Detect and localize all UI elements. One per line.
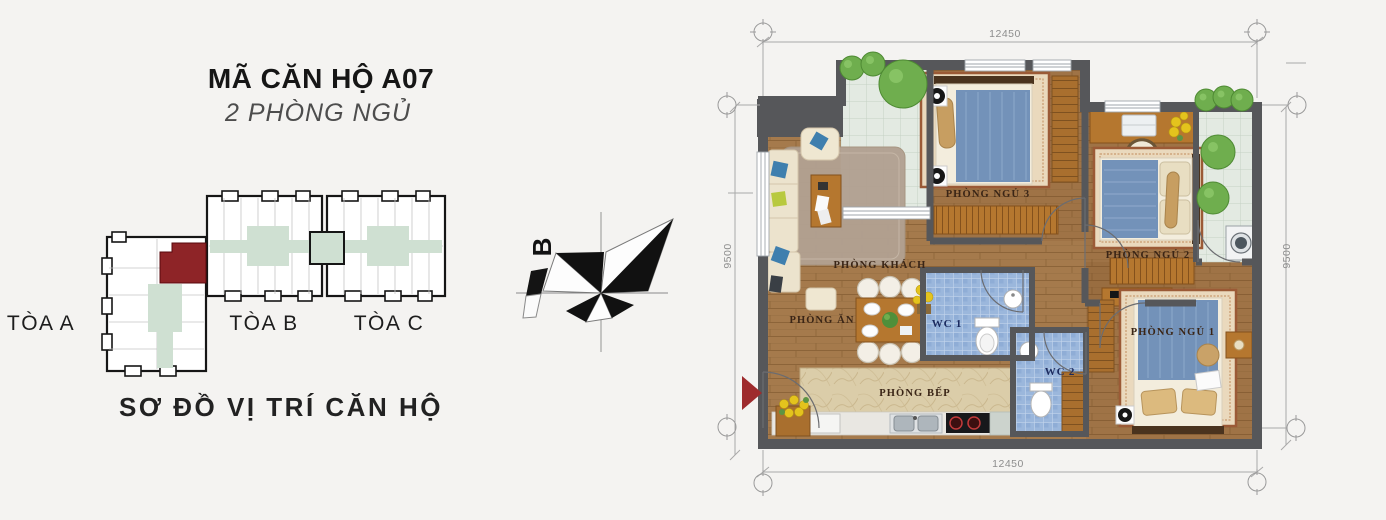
- building-connector: [310, 232, 344, 264]
- header: MÃ CĂN HỘ A07 2 PHÒNG NGỦ: [208, 62, 434, 127]
- dining-furniture: [856, 277, 923, 365]
- compass-icon: B: [516, 212, 673, 352]
- compass-north-label: B: [527, 238, 557, 257]
- room-label-kitchen: PHÒNG BẾP: [879, 386, 950, 399]
- room-label-bedroom2: PHÒNG NGỦ 2: [1106, 249, 1190, 261]
- room-label-wc2: WC 2: [1045, 366, 1075, 378]
- floor-plan: PHÒNG KHÁCH PHÒNG ĂN PHÒNG BẾP PHÒNG NGỦ…: [718, 19, 1306, 496]
- bedroom3-furniture: [921, 73, 1078, 234]
- room-label-living: PHÒNG KHÁCH: [834, 259, 927, 271]
- building-key-diagram: TÒA A TÒA B TÒA C SƠ ĐỒ VỊ TRÍ CĂN HỘ: [7, 191, 445, 422]
- building-label-c: TÒA C: [354, 312, 425, 335]
- dimension-bottom: 12450: [754, 450, 1266, 496]
- room-label-bedroom3: PHÒNG NGỦ 3: [946, 188, 1030, 200]
- building-label-b: TÒA B: [229, 312, 298, 335]
- speaker-icon: [1116, 406, 1134, 424]
- apartment-floorplan-page: MÃ CĂN HỘ A07 2 PHÒNG NGỦ: [0, 0, 1386, 520]
- building-a-outline: [102, 232, 206, 376]
- building-label-a: TÒA A: [7, 312, 75, 335]
- svg-text:9500: 9500: [722, 243, 734, 268]
- svg-text:12450: 12450: [989, 28, 1021, 40]
- svg-text:12450: 12450: [992, 458, 1024, 470]
- key-plan-caption: SƠ ĐỒ VỊ TRÍ CĂN HỘ: [119, 392, 443, 422]
- room-label-wc1: WC 1: [932, 318, 962, 330]
- room-label-bedroom1: PHÒNG NGỦ 1: [1131, 326, 1215, 338]
- floorplan-canvas: MÃ CĂN HỘ A07 2 PHÒNG NGỦ: [0, 0, 1386, 520]
- svg-text:9500: 9500: [1281, 243, 1293, 268]
- room-label-dining: PHÒNG ĂN: [789, 314, 854, 326]
- page-title: MÃ CĂN HỘ A07: [208, 62, 434, 94]
- building-b-outline: [207, 191, 322, 301]
- page-subtitle: 2 PHÒNG NGỦ: [224, 96, 411, 127]
- balcony-right-contents: [1226, 226, 1256, 260]
- dimension-right: 9500: [1262, 63, 1306, 450]
- dimension-left: 9500: [718, 92, 760, 460]
